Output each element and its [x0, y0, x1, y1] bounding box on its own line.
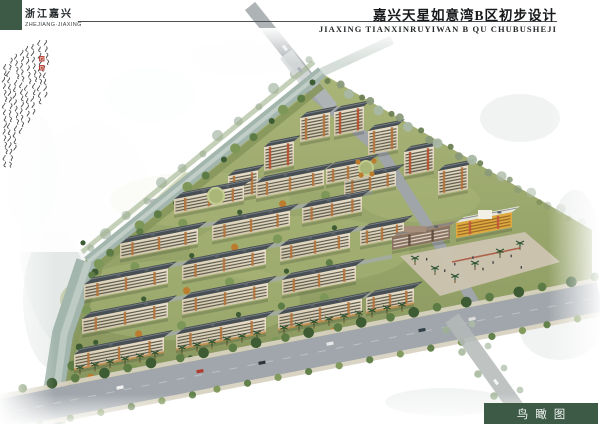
presentation-sheet: 浙江嘉兴 ZHEJIANG·JIAXING 嘉兴天星如意湾B区初步设计 JIAX… [0, 0, 600, 424]
project-title-en: JIAXING TIANXINRUYIWAN B QU CHUBUSHEJI [300, 24, 557, 34]
aerial-rendering [0, 0, 600, 424]
region-name-en: ZHEJIANG·JIAXING [25, 22, 82, 28]
view-label: 鸟瞰图 [484, 403, 598, 424]
project-title-cn: 嘉兴天星如意湾B区初步设计 [340, 4, 557, 24]
brand-color-block [0, 0, 22, 30]
region-name-cn: 浙江嘉兴 [25, 5, 73, 20]
